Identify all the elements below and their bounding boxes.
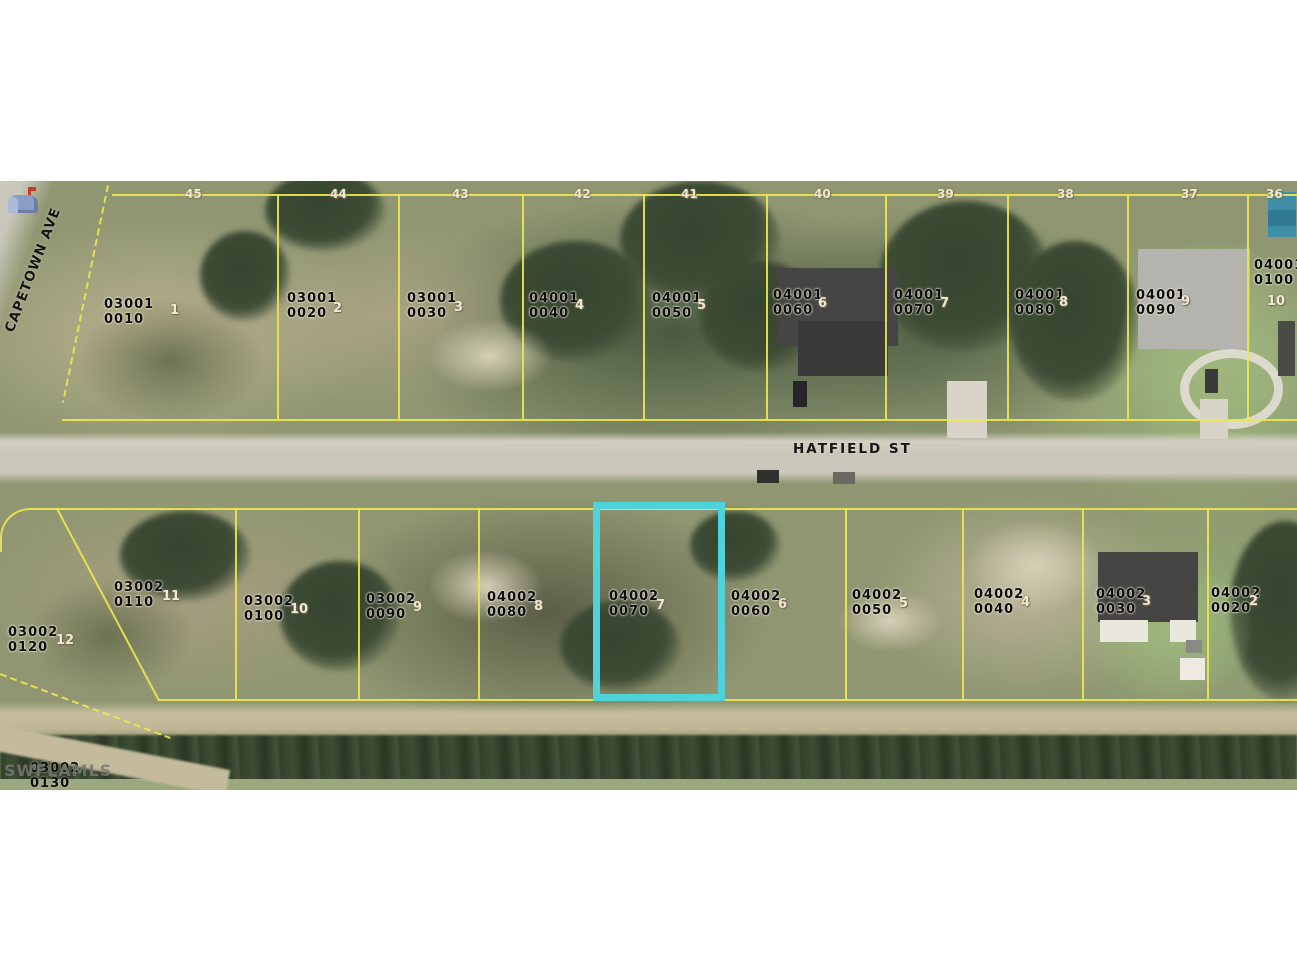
shed-gray-lot2 bbox=[1186, 640, 1202, 653]
adjacent-lot-number: 36 bbox=[1266, 187, 1283, 201]
lot-number: 6 bbox=[818, 296, 827, 311]
driveway-lot6 bbox=[947, 381, 987, 438]
parcel-line bbox=[1247, 194, 1249, 419]
parcel-line bbox=[643, 194, 645, 419]
lot-number: 10 bbox=[290, 602, 308, 617]
lot-number: 10 bbox=[1267, 294, 1285, 309]
parcel-label-03001-0020: 030010020 bbox=[287, 291, 337, 321]
parcel-line bbox=[522, 194, 524, 419]
parcel-line bbox=[62, 419, 1297, 421]
lot-number: 6 bbox=[778, 597, 787, 612]
parcel-label-04002-0050: 040020050 bbox=[852, 588, 902, 618]
parcel-label-04001-0090: 040010090 bbox=[1136, 288, 1186, 318]
parcel-line bbox=[398, 194, 400, 419]
tree-cluster bbox=[1010, 241, 1140, 401]
parcel-label-04001-0100: 040010100 bbox=[1254, 258, 1297, 288]
patio-lot3 bbox=[1100, 620, 1148, 642]
circular-driveway-lot9 bbox=[1180, 349, 1283, 429]
aerial-photo: HATFIELD ST CAPETOWN AVE 03002 0130 SWFL… bbox=[0, 181, 1297, 790]
parcel-line-corner bbox=[0, 508, 36, 552]
parcel-line bbox=[235, 508, 237, 699]
lot-number: 8 bbox=[534, 599, 543, 614]
parcel-line bbox=[1082, 508, 1084, 699]
parcel-line bbox=[845, 508, 847, 699]
parcel-line bbox=[1007, 194, 1009, 419]
parcel-line bbox=[478, 508, 480, 699]
parcel-label-03002-0100: 030020100 bbox=[244, 594, 294, 624]
parcel-label-04002-0070: 040020070 bbox=[609, 589, 659, 619]
adjacent-lot-number: 42 bbox=[574, 187, 591, 201]
street-label-hatfield: HATFIELD ST bbox=[793, 441, 912, 457]
lot-number: 12 bbox=[56, 633, 74, 648]
car-on-hatfield-2 bbox=[833, 472, 855, 484]
parcel-label-03002-0090: 030020090 bbox=[366, 592, 416, 622]
parcel-line bbox=[962, 508, 964, 699]
lot-number: 11 bbox=[162, 589, 180, 604]
parcel-label-04002-0080: 040020080 bbox=[487, 590, 537, 620]
mls-watermark: SWFLAMLS bbox=[4, 761, 112, 780]
lot-number: 1 bbox=[170, 303, 179, 318]
parcel-line bbox=[1207, 508, 1209, 699]
vehicle-right-edge bbox=[1278, 321, 1295, 376]
parcel-line bbox=[766, 194, 768, 419]
adjacent-lot-number: 41 bbox=[681, 187, 698, 201]
parcel-label-04002-0060: 040020060 bbox=[731, 589, 781, 619]
lot-number: 2 bbox=[1249, 594, 1258, 609]
parcel-label-04002-0030: 040020030 bbox=[1096, 587, 1146, 617]
parcel-label-04001-0070: 040010070 bbox=[894, 288, 944, 318]
parcel-line bbox=[1127, 194, 1129, 419]
lot-number: 4 bbox=[575, 298, 584, 313]
lot-number: 4 bbox=[1021, 595, 1030, 610]
lot-number: 7 bbox=[940, 296, 949, 311]
shed-white-lot2 bbox=[1180, 658, 1205, 680]
patio-lot3-small bbox=[1170, 620, 1196, 642]
lot-number: 8 bbox=[1059, 295, 1068, 310]
house-lot6-wing bbox=[798, 321, 888, 376]
car-lot9 bbox=[1205, 369, 1218, 393]
lot-number: 3 bbox=[1142, 594, 1151, 609]
adjacent-lot-number: 38 bbox=[1057, 187, 1074, 201]
parcel-line bbox=[112, 194, 1297, 196]
parcel-label-04002-0040: 040020040 bbox=[974, 587, 1024, 617]
parcel-label-03002-0110: 030020110 bbox=[114, 580, 164, 610]
parcel-line bbox=[158, 699, 1297, 701]
lot-number: 5 bbox=[697, 298, 706, 313]
mailbox-icon bbox=[6, 187, 42, 217]
parcel-label-03001-0030: 030010030 bbox=[407, 291, 457, 321]
lot-number: 3 bbox=[454, 300, 463, 315]
parcel-label-04001-0050: 040010050 bbox=[652, 291, 702, 321]
parcel-label-04001-0060: 040010060 bbox=[773, 288, 823, 318]
car-lot6 bbox=[793, 381, 807, 407]
lot-number: 9 bbox=[413, 600, 422, 615]
parcel-label-03001-0010: 030010010 bbox=[104, 297, 154, 327]
hatfield-st-road bbox=[0, 432, 1297, 484]
parcel-label-04001-0040: 040010040 bbox=[529, 291, 579, 321]
adjacent-lot-number: 43 bbox=[452, 187, 469, 201]
tree-cluster bbox=[265, 181, 385, 251]
adjacent-lot-number: 37 bbox=[1181, 187, 1198, 201]
adjacent-lot-number: 39 bbox=[937, 187, 954, 201]
car-on-hatfield bbox=[757, 470, 779, 483]
lot-number: 5 bbox=[899, 596, 908, 611]
lot-number: 9 bbox=[1181, 294, 1190, 309]
parcel-line bbox=[885, 194, 887, 419]
parcel-label-04001-0080: 040010080 bbox=[1015, 288, 1065, 318]
adjacent-lot-number: 45 bbox=[185, 187, 202, 201]
lot-number: 2 bbox=[333, 301, 342, 316]
sand-patch bbox=[430, 321, 550, 391]
parcel-label-03002-0120: 030020120 bbox=[8, 625, 58, 655]
adjacent-lot-number: 44 bbox=[330, 187, 347, 201]
parcel-line bbox=[358, 508, 360, 699]
parcel-line bbox=[277, 194, 279, 419]
lot-number: 7 bbox=[656, 598, 665, 613]
mls-aerial-parcel-map: HATFIELD ST CAPETOWN AVE 03002 0130 SWFL… bbox=[0, 0, 1297, 972]
adjacent-lot-number: 40 bbox=[814, 187, 831, 201]
